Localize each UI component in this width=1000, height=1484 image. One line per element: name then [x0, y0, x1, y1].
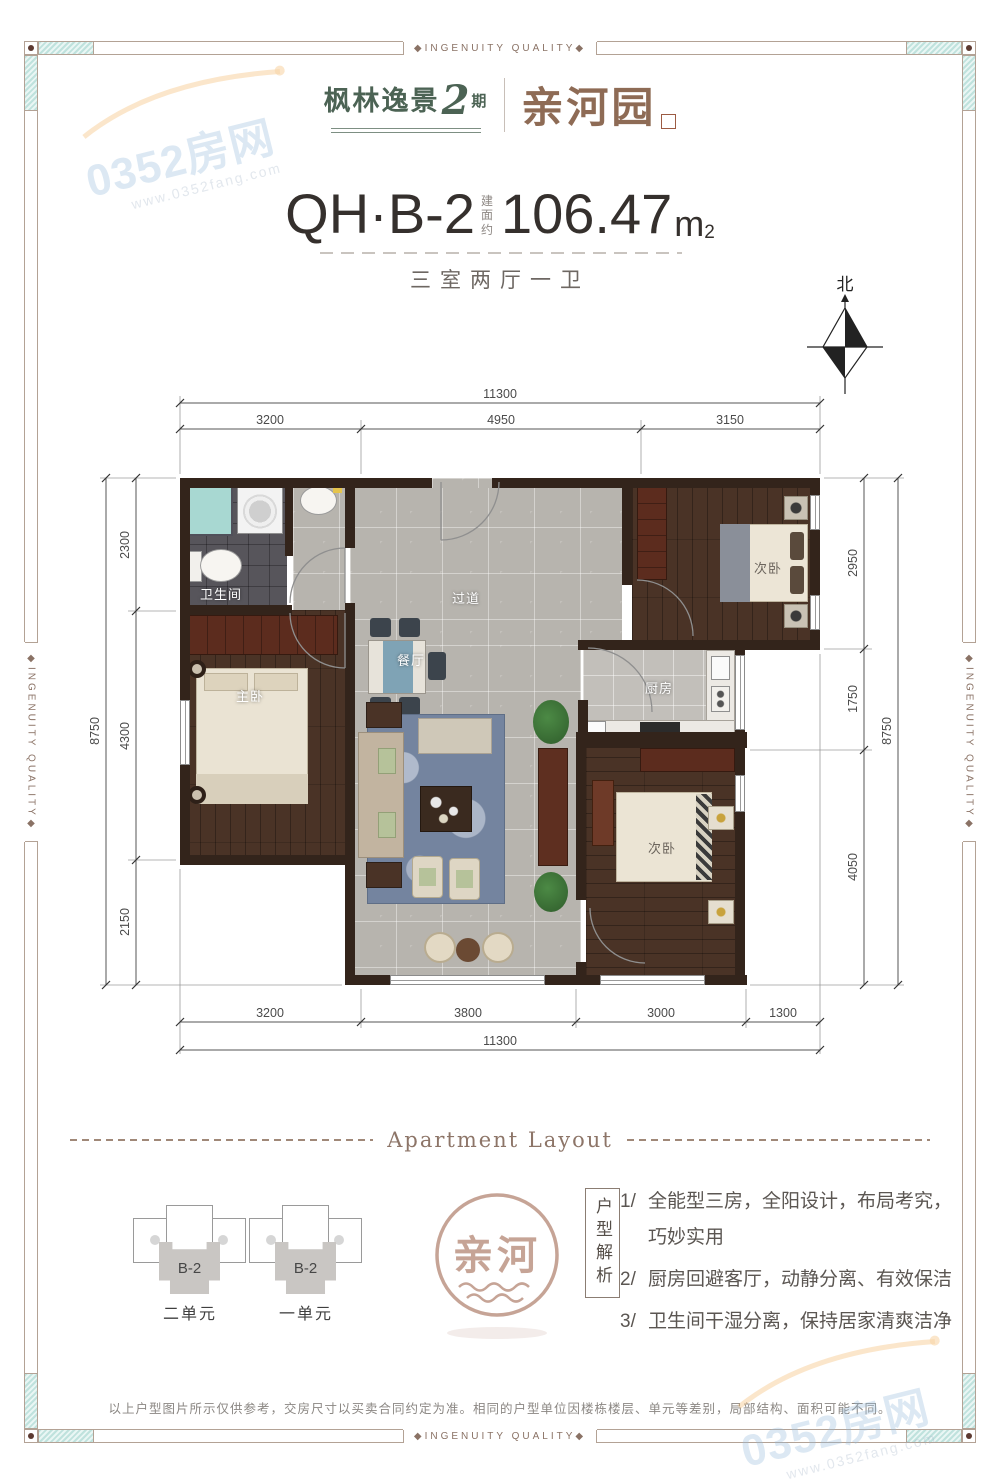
- brand-phase-number: 2: [442, 77, 472, 124]
- frame-hatch: [906, 1429, 962, 1443]
- wall: [578, 640, 820, 650]
- pillow: [790, 532, 804, 560]
- wall: [180, 855, 355, 865]
- unit-name: 二单元: [163, 1300, 217, 1324]
- wall: [180, 478, 432, 488]
- kitchen-sink: [711, 656, 730, 680]
- brand-rule: [331, 128, 481, 133]
- wall: [345, 603, 355, 985]
- side-table: [366, 702, 402, 728]
- room-label-bathroom: 卫生间: [200, 584, 242, 603]
- window: [810, 495, 820, 530]
- wall: [810, 530, 820, 595]
- building-dot: [150, 1235, 160, 1245]
- dim-right-total: 8750: [880, 717, 894, 745]
- bedside-lamp: [188, 660, 206, 678]
- frame-corner: [962, 1429, 976, 1443]
- bedside-lamp: [188, 786, 206, 804]
- wall: [576, 962, 586, 985]
- entrance-threshold: [432, 478, 492, 488]
- brand-seal-icon: [661, 114, 676, 129]
- window: [180, 700, 190, 765]
- frame-banner-right: ◆INGENUITY QUALITY◆: [963, 642, 976, 843]
- toilet: [200, 549, 242, 582]
- dim-bottom-seg: 3800: [454, 1006, 482, 1020]
- room-label-bedroom-bottom: 次卧: [648, 838, 676, 857]
- area-label: 建面约: [481, 194, 496, 237]
- title-underline: [320, 252, 682, 254]
- wardrobe: [188, 615, 338, 655]
- window: [390, 975, 545, 985]
- area-value: 106.47: [501, 186, 672, 242]
- highlighted-unit: B-2: [275, 1242, 336, 1294]
- nightstand: [784, 496, 808, 520]
- plant: [533, 700, 569, 744]
- room-label-kitchen: 厨房: [645, 678, 673, 697]
- dim-bottom-seg: 3000: [647, 1006, 675, 1020]
- dim-left-total: 8750: [88, 717, 102, 745]
- room-label-master-bedroom: 主卧: [236, 686, 264, 705]
- nightstand: [708, 806, 734, 830]
- balcony-chair: [482, 932, 514, 963]
- building-block: [166, 1205, 213, 1251]
- shower: [188, 484, 233, 536]
- dim-right-seg: 2950: [846, 549, 860, 577]
- brand-logo: 枫林逸景2期 亲河园: [0, 74, 1000, 135]
- window: [735, 655, 745, 730]
- wall: [492, 478, 820, 488]
- dim-bottom-total: 11300: [483, 1034, 517, 1048]
- side-table: [366, 862, 402, 888]
- section-divider: Apartment Layout: [70, 1128, 930, 1152]
- frame-hatch: [906, 41, 962, 55]
- armchair-pillow: [456, 870, 473, 888]
- coffee-table: [420, 786, 472, 832]
- dim-bottom-seg: 1300: [769, 1006, 797, 1020]
- unit-name: 一单元: [279, 1300, 333, 1324]
- dim-top-seg: 4950: [487, 413, 515, 427]
- frame-corner: [24, 41, 38, 55]
- wall: [345, 478, 355, 548]
- washing-machine: [237, 484, 283, 534]
- analysis-item: 1/ 全能型三房，全阳设计，布局考究， 巧妙实用: [620, 1184, 960, 1256]
- bench: [592, 780, 614, 846]
- plant: [534, 872, 568, 912]
- wall: [578, 640, 588, 648]
- frame-corner: [962, 41, 976, 55]
- analysis-heading: 户型解析: [585, 1188, 620, 1298]
- balcony-chair: [424, 932, 456, 963]
- section-divider-label: Apartment Layout: [387, 1128, 613, 1152]
- frame-hatch: [24, 1373, 38, 1429]
- dim-right-seg: 4050: [846, 853, 860, 881]
- cooktop: [711, 686, 730, 712]
- floorplan-page: ◆INGENUITY QUALITY◆ ◆INGENUITY QUALITY◆ …: [0, 0, 1000, 1484]
- disclaimer-text: 以上户型图片所示仅供参考，交房尺寸以买卖合同约定为准。相同的户型单位因楼栋楼层、…: [80, 1398, 920, 1417]
- wall: [285, 478, 293, 556]
- brand-name: 枫林逸景: [324, 86, 440, 117]
- wall: [735, 640, 745, 655]
- analysis-list: 1/ 全能型三房，全阳设计，布局考究， 巧妙实用 2/ 厨房回避客厅，动静分离、…: [620, 1184, 960, 1346]
- frame-hatch: [38, 41, 94, 55]
- window: [810, 595, 820, 630]
- room-label-hallway: 过道: [452, 588, 480, 607]
- nightstand: [784, 604, 808, 628]
- frame-bottom-band: ◆INGENUITY QUALITY◆: [38, 1429, 962, 1443]
- building-dot: [266, 1235, 276, 1245]
- brand-divider: [504, 78, 505, 132]
- floor-mat: [418, 718, 492, 754]
- unit-code: QH·B-2: [285, 186, 475, 242]
- sofa-pillow: [378, 812, 396, 838]
- dim-left-seg: 2150: [118, 908, 132, 936]
- wall: [810, 630, 820, 650]
- frame-banner-bottom: ◆INGENUITY QUALITY◆: [403, 1430, 597, 1443]
- brand-sub-name: 亲河园: [521, 74, 656, 135]
- dim-top-seg: 3200: [256, 413, 284, 427]
- dining-chair: [428, 652, 446, 680]
- wall: [576, 732, 747, 748]
- layout-description: 三室两厅一卫: [0, 264, 1000, 294]
- frame-banner-left: ◆INGENUITY QUALITY◆: [25, 642, 38, 843]
- frame-hatch: [38, 1429, 94, 1443]
- room-label-dining: 餐厅: [397, 650, 425, 669]
- seal-text: 亲河: [453, 1234, 541, 1278]
- wall: [810, 478, 820, 495]
- wall: [735, 812, 745, 985]
- seal-logo: 亲河: [425, 1185, 570, 1345]
- balcony-table: [456, 938, 480, 962]
- tv-console: [538, 748, 568, 866]
- area-unit-exponent: 2: [704, 223, 715, 242]
- sink: [300, 486, 337, 515]
- dining-chair: [370, 618, 391, 637]
- brand-phase-word: 期: [471, 92, 488, 110]
- analysis-item: 3/ 卫生间干湿分离，保持居家清爽洁净: [620, 1304, 960, 1340]
- window: [735, 775, 745, 812]
- nightstand: [708, 900, 734, 924]
- frame-hatch: [962, 1373, 976, 1429]
- wall: [180, 478, 190, 700]
- frame-right-band: ◆INGENUITY QUALITY◆: [962, 55, 976, 1429]
- pillow: [790, 566, 804, 594]
- wardrobe: [637, 486, 667, 580]
- dim-bottom-seg: 3200: [256, 1006, 284, 1020]
- dim-right-seg: 1750: [846, 685, 860, 713]
- wall: [576, 738, 586, 900]
- frame-top-band: ◆INGENUITY QUALITY◆: [38, 41, 962, 55]
- dim-top-total: 11300: [483, 387, 517, 401]
- window: [600, 975, 705, 985]
- wall: [180, 605, 292, 615]
- armchair-pillow: [419, 868, 436, 886]
- dim-top-seg: 3150: [716, 413, 744, 427]
- frame-left-band: ◆INGENUITY QUALITY◆: [24, 55, 38, 1429]
- wall: [622, 478, 632, 585]
- sofa-pillow: [378, 748, 396, 774]
- dim-left-seg: 2300: [118, 531, 132, 559]
- area-unit: m: [674, 206, 704, 242]
- frame-banner-top: ◆INGENUITY QUALITY◆: [403, 42, 597, 55]
- dresser: [640, 748, 735, 772]
- brand-primary: 枫林逸景2期: [324, 77, 489, 133]
- dim-left-seg: 4300: [118, 722, 132, 750]
- wall: [180, 765, 190, 865]
- wall: [735, 730, 745, 775]
- building-block: [282, 1205, 329, 1251]
- frame-corner: [24, 1429, 38, 1443]
- bed-blanket: [196, 774, 308, 804]
- unit-title: QH·B-2 建面约 106.47 m 2: [0, 186, 1000, 242]
- wall: [578, 700, 588, 742]
- dining-chair: [399, 618, 420, 637]
- analysis-item: 2/ 厨房回避客厅，动静分离、有效保洁: [620, 1262, 960, 1298]
- wall: [545, 975, 600, 985]
- room-label-bedroom-top: 次卧: [754, 558, 782, 577]
- highlighted-unit: B-2: [159, 1242, 220, 1294]
- bed-blanket: [720, 524, 750, 602]
